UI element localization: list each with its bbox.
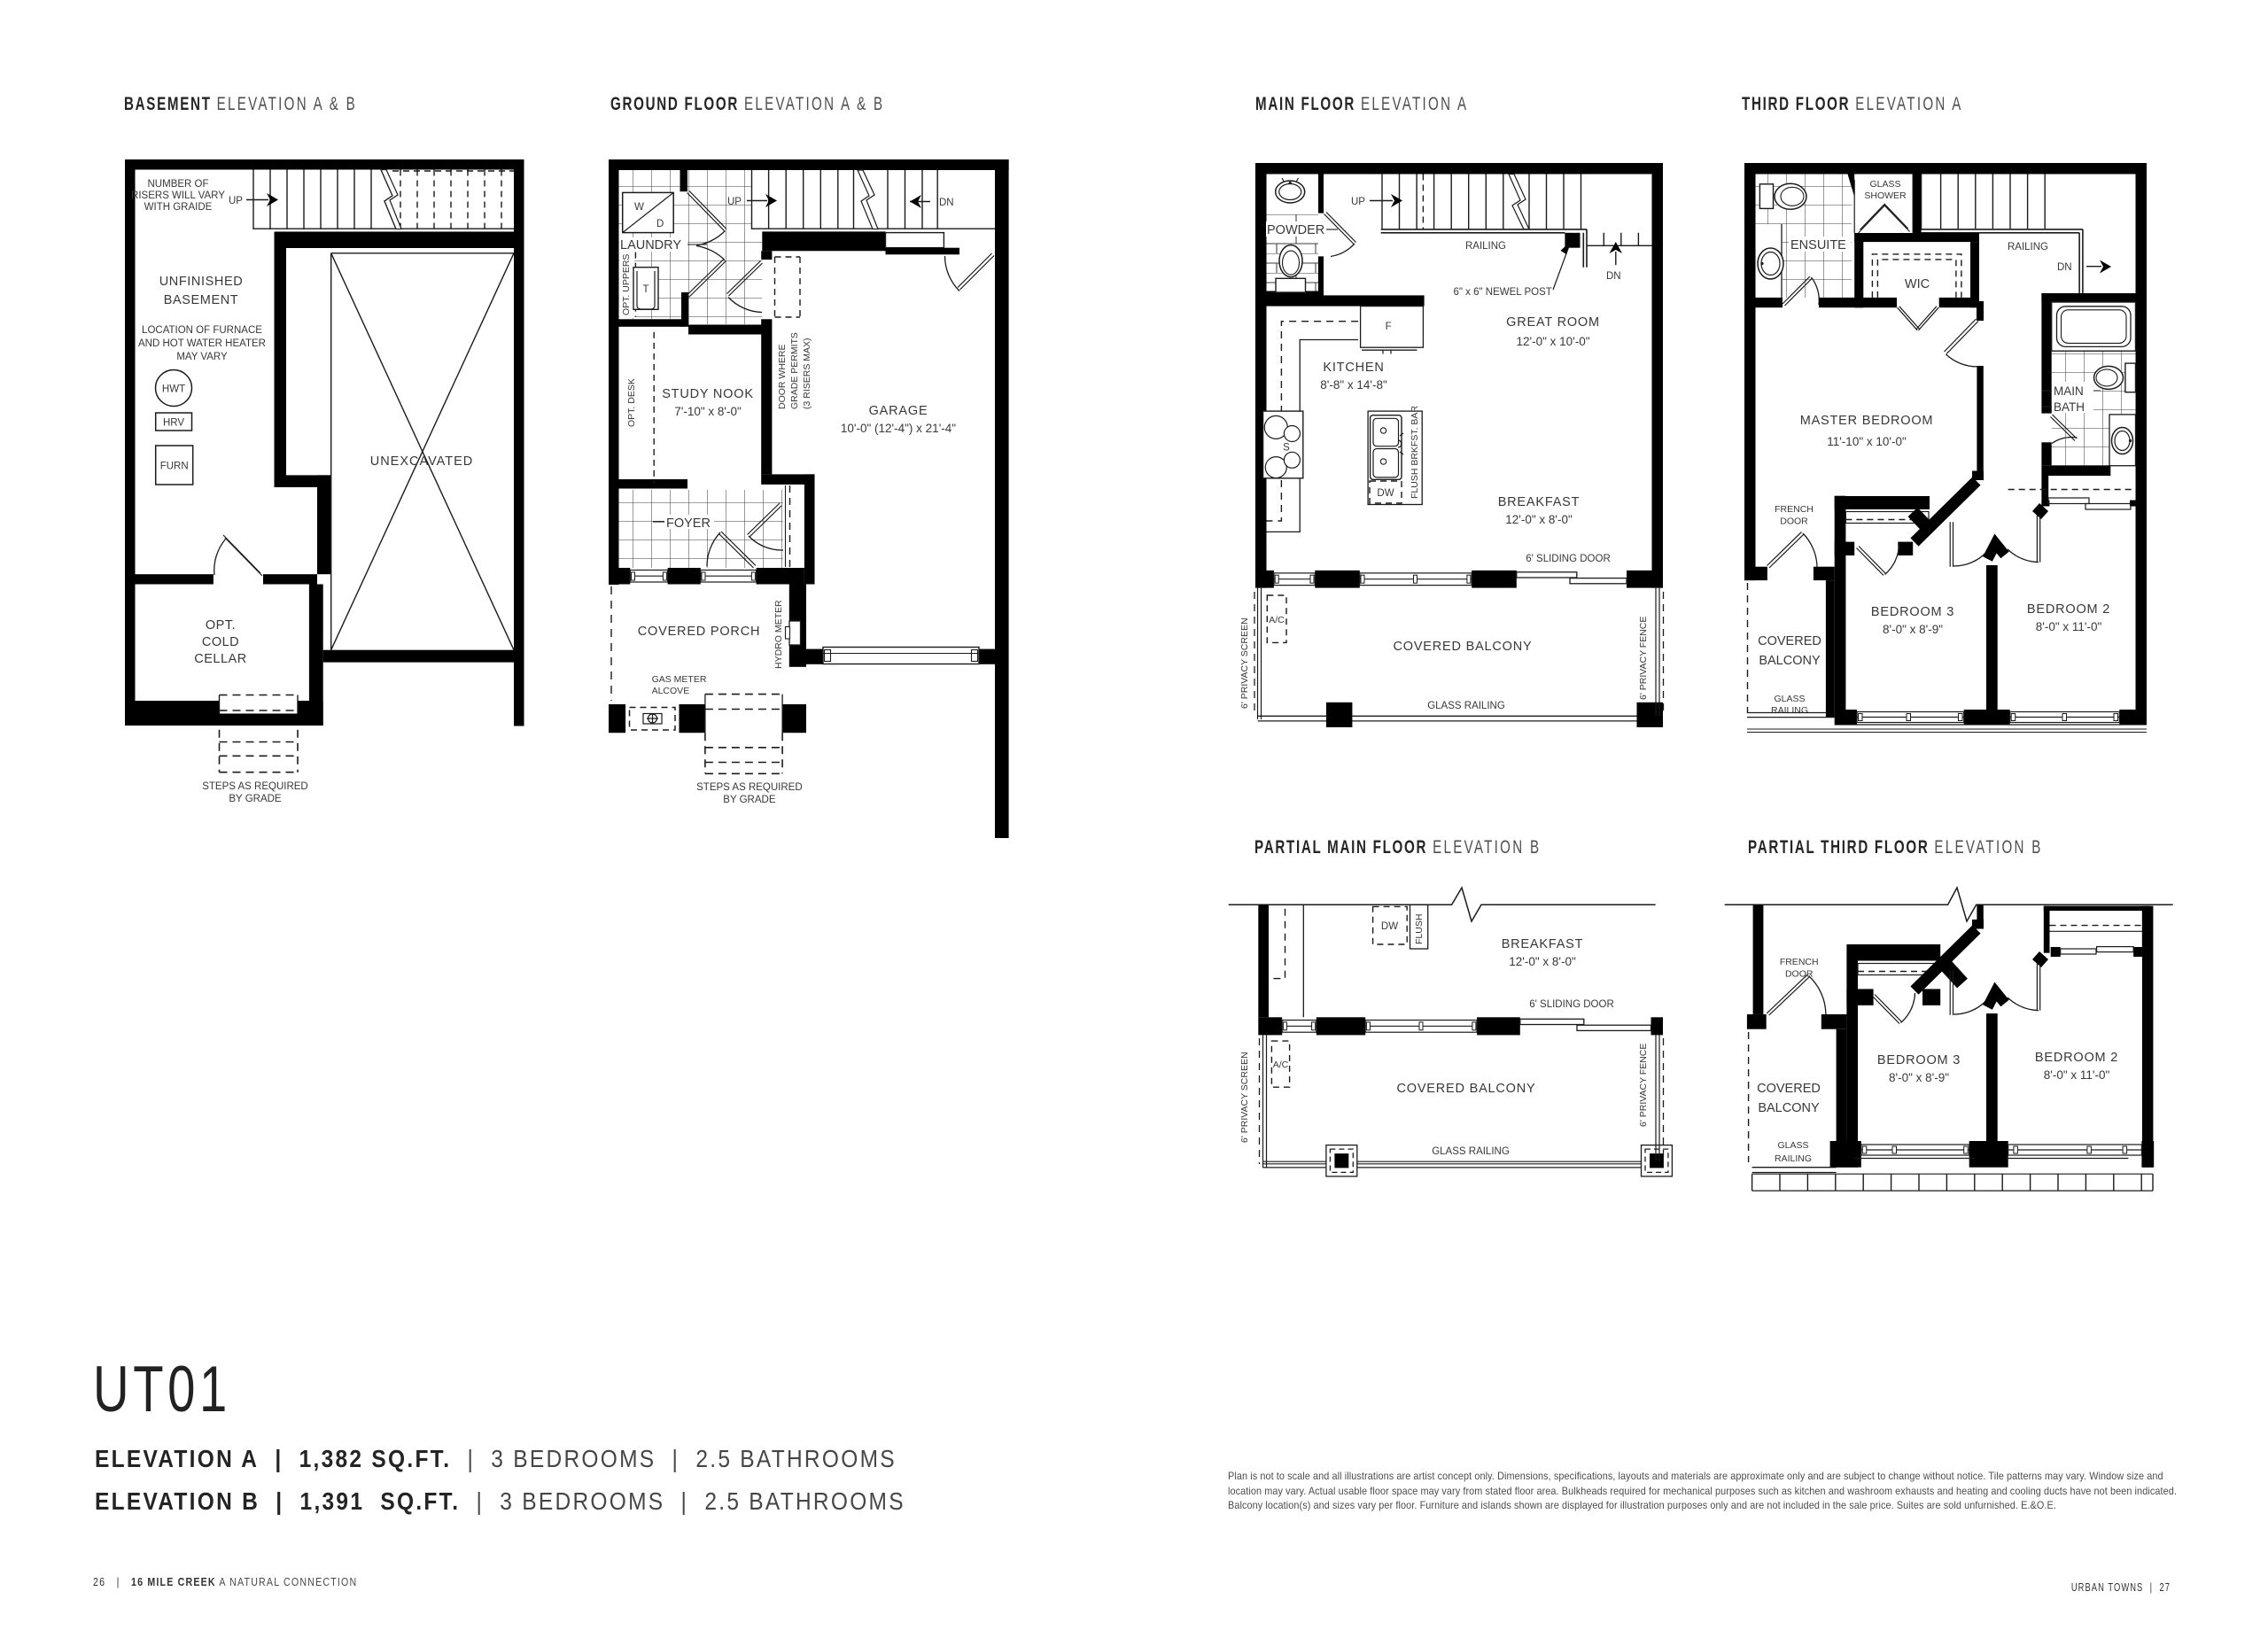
svg-text:RISERS WILL VARY: RISERS WILL VARY xyxy=(131,190,225,201)
svg-text:GLASS: GLASS xyxy=(1777,1140,1808,1151)
svg-text:FLUSH BRKFST. BAR: FLUSH BRKFST. BAR xyxy=(1410,406,1420,499)
svg-text:A/C: A/C xyxy=(1269,615,1285,625)
svg-text:12'-0" x 8'-0": 12'-0" x 8'-0" xyxy=(1505,513,1573,526)
svg-text:RAILING: RAILING xyxy=(1771,705,1808,716)
svg-text:BEDROOM 3: BEDROOM 3 xyxy=(1871,605,1954,619)
svg-text:GRADE PERMITS: GRADE PERMITS xyxy=(789,332,800,409)
svg-text:GREAT ROOM: GREAT ROOM xyxy=(1506,315,1600,330)
svg-text:RAILING: RAILING xyxy=(1775,1153,1812,1164)
svg-text:(3 RISERS MAX): (3 RISERS MAX) xyxy=(802,338,812,409)
svg-text:SHOWER: SHOWER xyxy=(1864,190,1907,201)
svg-text:8'-0" x 11'-0": 8'-0" x 11'-0" xyxy=(2044,1068,2110,1082)
svg-text:BREAKFAST: BREAKFAST xyxy=(1502,937,1584,951)
svg-text:ALCOVE: ALCOVE xyxy=(652,686,690,696)
svg-text:OPT. UPPERS: OPT. UPPERS xyxy=(621,254,632,315)
svg-text:UP: UP xyxy=(229,196,243,206)
svg-text:POWDER: POWDER xyxy=(1267,223,1324,237)
svg-text:UNEXCAVATED: UNEXCAVATED xyxy=(370,454,474,469)
svg-text:FOYER: FOYER xyxy=(666,516,711,531)
svg-text:BY GRADE: BY GRADE xyxy=(229,794,282,804)
svg-text:HYDRO METER: HYDRO METER xyxy=(773,600,784,669)
svg-text:COVERED PORCH: COVERED PORCH xyxy=(638,625,761,639)
svg-text:11'-10" x 10'-0": 11'-10" x 10'-0" xyxy=(1827,435,1907,448)
svg-text:COLD: COLD xyxy=(202,635,239,649)
svg-text:GLASS: GLASS xyxy=(1869,179,1900,190)
svg-text:8'-0" x 11'-0": 8'-0" x 11'-0" xyxy=(2036,620,2102,633)
svg-text:6" x 6" NEWEL POST: 6" x 6" NEWEL POST xyxy=(1454,287,1552,298)
svg-text:T: T xyxy=(642,284,649,295)
svg-text:GAS METER: GAS METER xyxy=(652,674,707,685)
svg-text:6' PRIVACY FENCE: 6' PRIVACY FENCE xyxy=(1638,617,1649,700)
svg-text:8'-0" x 8'-9": 8'-0" x 8'-9" xyxy=(1883,623,1943,636)
svg-text:OPT. DESK: OPT. DESK xyxy=(626,378,637,427)
svg-text:FLUSH: FLUSH xyxy=(1414,914,1425,944)
svg-text:CELLAR: CELLAR xyxy=(194,652,246,666)
svg-text:8'-0" x 8'-9": 8'-0" x 8'-9" xyxy=(1889,1071,1949,1084)
svg-text:6' SLIDING DOOR: 6' SLIDING DOOR xyxy=(1526,554,1611,564)
svg-text:FRENCH: FRENCH xyxy=(1780,957,1819,967)
svg-text:FRENCH: FRENCH xyxy=(1775,504,1814,515)
svg-text:6' PRIVACY SCREEN: 6' PRIVACY SCREEN xyxy=(1239,1052,1250,1143)
svg-text:DOOR WHERE: DOOR WHERE xyxy=(777,345,788,410)
svg-text:7'-10" x 8'-0": 7'-10" x 8'-0" xyxy=(674,405,742,418)
svg-text:BALCONY: BALCONY xyxy=(1758,1101,1820,1115)
svg-text:UP: UP xyxy=(1351,197,1365,207)
svg-text:AND HOT WATER HEATER: AND HOT WATER HEATER xyxy=(138,338,266,349)
svg-text:BEDROOM 2: BEDROOM 2 xyxy=(2035,1051,2118,1065)
svg-text:WITH GRAIDE: WITH GRAIDE xyxy=(144,202,213,213)
svg-text:DW: DW xyxy=(1377,488,1394,499)
svg-text:DN: DN xyxy=(939,198,954,208)
svg-text:BALCONY: BALCONY xyxy=(1759,654,1821,668)
svg-text:12'-0" x 10'-0": 12'-0" x 10'-0" xyxy=(1516,335,1589,348)
svg-text:FURN: FURN xyxy=(160,462,189,472)
svg-text:UP: UP xyxy=(727,197,742,207)
svg-text:F: F xyxy=(1386,322,1392,332)
svg-text:BY GRADE: BY GRADE xyxy=(723,795,776,805)
svg-text:DOOR: DOOR xyxy=(1780,516,1808,527)
svg-text:STEPS AS REQUIRED: STEPS AS REQUIRED xyxy=(696,782,803,793)
svg-text:OPT.: OPT. xyxy=(206,618,236,633)
svg-text:LOCATION OF FURNACE: LOCATION OF FURNACE xyxy=(142,325,262,336)
svg-text:NUMBER OF: NUMBER OF xyxy=(148,179,209,190)
svg-text:10'-0" (12'-4") x 21'-4": 10'-0" (12'-4") x 21'-4" xyxy=(841,422,956,435)
svg-text:STEPS AS REQUIRED: STEPS AS REQUIRED xyxy=(202,781,308,792)
svg-text:WIC: WIC xyxy=(1905,277,1930,291)
svg-text:A/C: A/C xyxy=(1273,1060,1289,1070)
svg-text:RAILING: RAILING xyxy=(1465,241,1506,252)
svg-text:GLASS: GLASS xyxy=(1774,694,1805,704)
svg-text:6' PRIVACY FENCE: 6' PRIVACY FENCE xyxy=(1638,1044,1649,1127)
svg-text:6' PRIVACY SCREEN: 6' PRIVACY SCREEN xyxy=(1239,617,1250,709)
svg-text:MASTER BEDROOM: MASTER BEDROOM xyxy=(1800,414,1934,428)
svg-text:COVERED BALCONY: COVERED BALCONY xyxy=(1396,1082,1535,1096)
svg-text:BASEMENT: BASEMENT xyxy=(164,293,239,307)
svg-text:RAILING: RAILING xyxy=(2008,242,2048,252)
svg-text:BREAKFAST: BREAKFAST xyxy=(1498,495,1581,509)
svg-text:12'-0" x 8'-0": 12'-0" x 8'-0" xyxy=(1509,955,1576,968)
svg-text:COVERED: COVERED xyxy=(1758,634,1821,648)
svg-text:MAY VARY: MAY VARY xyxy=(176,352,228,362)
svg-text:HWT: HWT xyxy=(162,384,185,395)
svg-text:GLASS RAILING: GLASS RAILING xyxy=(1427,701,1505,711)
svg-text:HRV: HRV xyxy=(163,418,184,429)
svg-text:LAUNDRY: LAUNDRY xyxy=(620,238,681,252)
svg-text:KITCHEN: KITCHEN xyxy=(1323,361,1384,375)
svg-text:6' SLIDING DOOR: 6' SLIDING DOOR xyxy=(1529,999,1614,1010)
svg-text:D: D xyxy=(656,219,664,229)
svg-text:MAIN: MAIN xyxy=(2054,384,2084,398)
svg-text:DW: DW xyxy=(1381,921,1398,932)
svg-text:GLASS RAILING: GLASS RAILING xyxy=(1432,1146,1510,1157)
svg-text:GARAGE: GARAGE xyxy=(869,404,928,418)
svg-text:DN: DN xyxy=(1606,271,1621,282)
svg-text:COVERED: COVERED xyxy=(1757,1082,1821,1096)
svg-text:BEDROOM 2: BEDROOM 2 xyxy=(2027,602,2110,617)
svg-text:UNFINISHED: UNFINISHED xyxy=(159,275,244,289)
svg-text:W: W xyxy=(634,202,644,213)
svg-text:BEDROOM 3: BEDROOM 3 xyxy=(1877,1053,1961,1067)
svg-text:DN: DN xyxy=(2057,262,2072,273)
svg-text:ENSUITE: ENSUITE xyxy=(1790,238,1846,252)
svg-text:BATH: BATH xyxy=(2054,400,2085,414)
svg-text:COVERED BALCONY: COVERED BALCONY xyxy=(1393,640,1532,654)
svg-text:8'-8" x 14'-8": 8'-8" x 14'-8" xyxy=(1320,378,1387,392)
svg-text:STUDY NOOK: STUDY NOOK xyxy=(662,387,754,401)
svg-text:S: S xyxy=(1283,443,1290,454)
